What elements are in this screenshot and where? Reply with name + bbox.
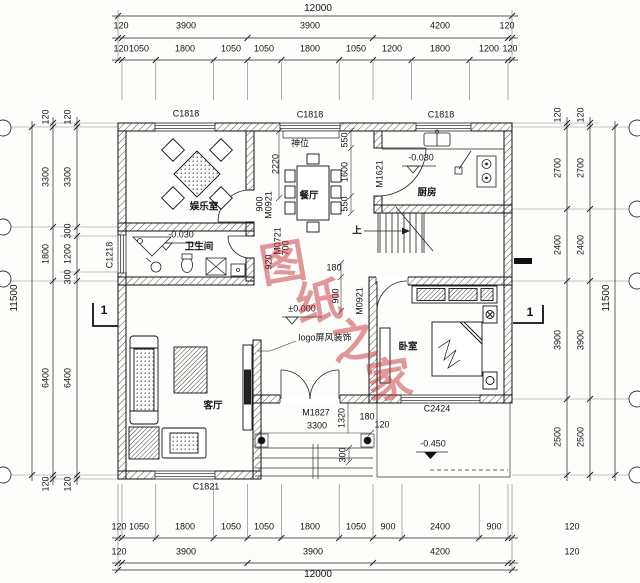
floor-plan-sheet: 1200012039003900420012012010501800105010… — [0, 0, 640, 583]
dim-bot-seg-3: 4200 — [430, 548, 450, 557]
dim-right-in-4: 2500 — [554, 427, 563, 447]
dim-right-overall: 11500 — [602, 284, 612, 311]
dim-left-det-0: 120 — [64, 109, 73, 124]
dim-bot-seg-0: 120 — [111, 548, 126, 557]
dim-porch-120: 120 — [374, 421, 389, 430]
labels-layer: 1200012039003900420012012010501800105010… — [0, 0, 640, 583]
dim-top-det-4: 1050 — [254, 45, 274, 54]
dim-top-det-0: 120 — [113, 45, 128, 54]
dim-entry-3300: 3300 — [307, 422, 327, 431]
dim-left-det-2: 300 — [64, 223, 73, 238]
dim-lower-550: 550 — [341, 196, 350, 211]
dim-right-out-2: 2400 — [577, 235, 586, 255]
dim-right-out-4: 2500 — [577, 427, 586, 447]
door-label-m1621: M1621 — [376, 160, 385, 188]
dim-right-in-3: 3900 — [554, 330, 563, 350]
dim-porch-1320: 1320 — [338, 408, 347, 428]
dim-right-in-1: 2700 — [554, 158, 563, 178]
dim-left-major-2: 1800 — [42, 244, 51, 264]
room-label-kitchen: 厨房 — [417, 188, 436, 198]
dim-top-seg-1: 3900 — [176, 22, 196, 31]
dim-top-det-9: 1200 — [479, 45, 499, 54]
door-label-m0921-bed: M0921 — [356, 287, 365, 315]
dim-step-300: 300 — [339, 447, 348, 462]
dim-left-det-1: 3300 — [64, 167, 73, 187]
dim-left-det-4: 300 — [64, 269, 73, 284]
dim-bot-det-6: 1050 — [346, 523, 366, 532]
dim-top-det-5: 1800 — [300, 45, 320, 54]
door-label-m1827: M1827 — [302, 409, 330, 418]
door-label-m0921-ent: M0921 — [265, 191, 274, 219]
dim-bed-door-180: 180 — [326, 264, 341, 273]
level-bathroom: -0.030 — [168, 231, 194, 240]
dim-left-det-3: 1200 — [64, 244, 73, 264]
dim-bot-seg-4: 120 — [564, 548, 579, 557]
dim-door-1600: 1600 — [341, 162, 350, 182]
dim-bot-seg-1: 3900 — [176, 548, 196, 557]
room-label-living: 客厅 — [203, 401, 222, 411]
dim-porch-180: 180 — [359, 413, 374, 422]
dim-bot-overall: 12000 — [304, 570, 332, 580]
dim-left-det-5: 6400 — [64, 368, 73, 388]
dim-bot-seg-2: 3900 — [303, 548, 323, 557]
dim-bot-det-7: 900 — [380, 523, 395, 532]
dim-bot-det-8: 2400 — [430, 523, 450, 532]
dim-right-out-1: 2700 — [577, 158, 586, 178]
dim-right-out-0: 120 — [577, 107, 586, 122]
dim-bot-det-1: 1050 — [129, 523, 149, 532]
window-label-c1818-1: C1818 — [173, 110, 200, 119]
window-label-c1818-3: C1818 — [428, 111, 455, 120]
dim-left-major-3: 6400 — [42, 368, 51, 388]
stair-up-label: 上 — [352, 226, 362, 236]
dim-bot-det-9: 900 — [486, 523, 501, 532]
dim-top-det-7: 1200 — [382, 45, 402, 54]
room-label-bathroom: 卫生间 — [185, 242, 214, 252]
dim-nook-2220: 2220 — [272, 154, 281, 174]
dim-left-major-1: 3300 — [42, 167, 51, 187]
dim-top-det-1: 1050 — [129, 45, 149, 54]
room-label-entertainment: 娱乐室 — [190, 202, 219, 212]
dim-top-seg-3: 4200 — [430, 22, 450, 31]
dim-left-major-0: 120 — [42, 109, 51, 124]
dim-bot-det-4: 1050 — [254, 523, 274, 532]
dim-top-seg-0: 120 — [113, 22, 128, 31]
dim-top-det-3: 1050 — [221, 45, 241, 54]
dim-right-in-2: 2400 — [554, 235, 563, 255]
section-mark-right: 1 — [527, 306, 534, 318]
dim-left-overall: 11500 — [10, 284, 20, 311]
dim-top-overall: 12000 — [304, 4, 332, 14]
level-outdoor: -0.450 — [420, 440, 446, 449]
dim-bot-det-2: 1800 — [175, 523, 195, 532]
dim-top-det-8: 1800 — [430, 45, 450, 54]
room-label-altar: 神位 — [291, 140, 309, 149]
dim-top-seg-2: 3900 — [300, 22, 320, 31]
dim-right-in-0: 120 — [554, 107, 563, 122]
dim-left-major-4: 120 — [42, 476, 51, 491]
window-label-c1218: C1218 — [106, 242, 115, 269]
dim-right-out-3: 3900 — [577, 330, 586, 350]
dim-top-det-2: 1800 — [175, 45, 195, 54]
dim-altar-550: 550 — [341, 132, 350, 147]
window-label-c2424: C2424 — [424, 405, 451, 414]
dim-ent-door-900: 900 — [256, 196, 265, 211]
dim-bot-det-5: 1800 — [300, 523, 320, 532]
watermark-char-3: 家 — [362, 353, 415, 406]
dim-bot-det-0: 120 — [111, 523, 126, 532]
dim-bot-det-10: 120 — [564, 523, 579, 532]
dim-left-det-6: 120 — [64, 476, 73, 491]
window-label-c1821: C1821 — [193, 483, 220, 492]
dim-bot-det-3: 1050 — [221, 523, 241, 532]
dim-top-det-6: 1050 — [346, 45, 366, 54]
room-label-dining: 餐厅 — [299, 191, 318, 201]
level-kitchen: -0.030 — [408, 154, 434, 163]
window-label-c1818-2: C1818 — [297, 111, 324, 120]
dim-top-seg-4: 120 — [499, 22, 514, 31]
dim-top-det-10: 120 — [502, 45, 517, 54]
section-mark-left: 1 — [101, 304, 108, 316]
